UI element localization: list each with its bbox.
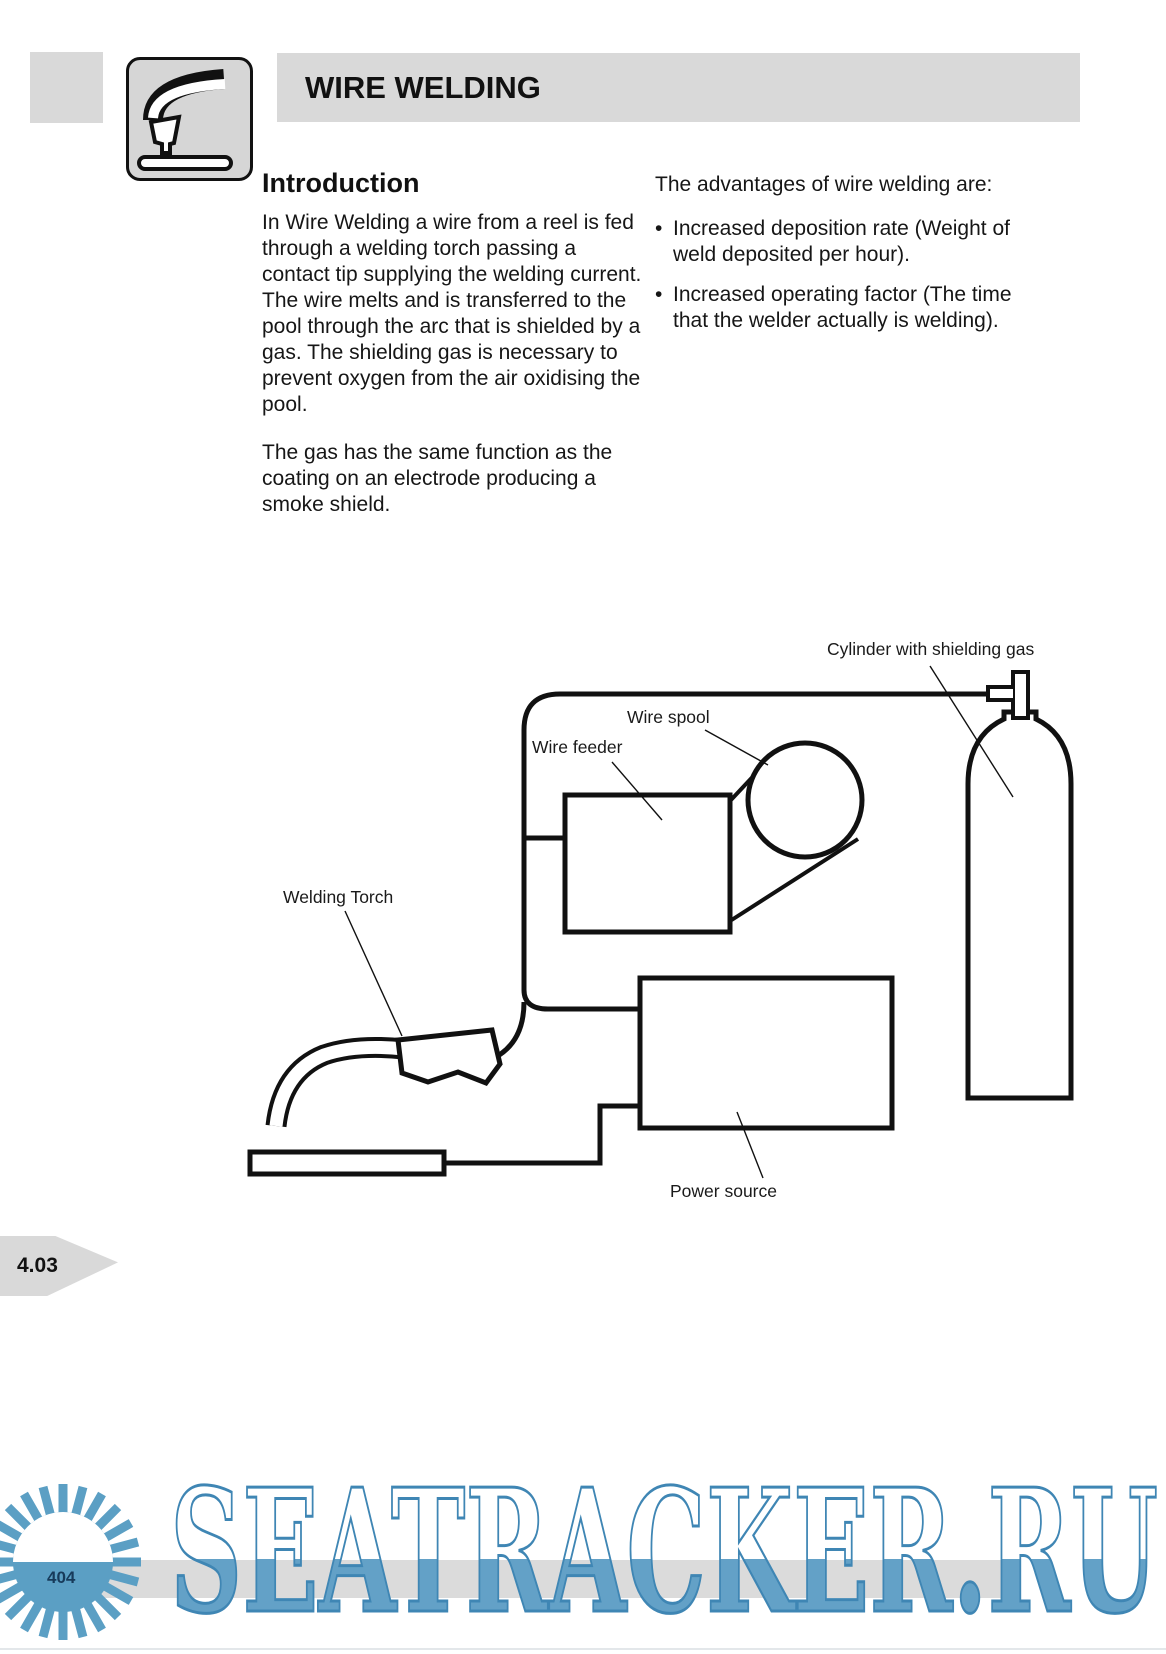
cylinder-label: Cylinder with shielding gas: [827, 639, 1034, 659]
work-lead-line: [444, 1106, 640, 1163]
page-number: 404: [47, 1568, 75, 1588]
power-source-box: [640, 978, 892, 1128]
cylinder-valve-stem: [1013, 672, 1028, 718]
wire-spool-circle: [748, 743, 862, 857]
watermark-layer: SEATRACKER.RU: [0, 1380, 1166, 1654]
sun-logo-icon: [0, 1484, 141, 1640]
watermark-text: SEATRACKER.RU: [170, 1452, 1158, 1652]
torch-leader-line: [345, 911, 402, 1036]
wire-feeder-box: [565, 795, 730, 932]
gas-cylinder: [968, 712, 1071, 1098]
torch-label: Welding Torch: [283, 887, 393, 907]
manual-page: { "header": { "title": "WIRE WELDING" },…: [0, 0, 1166, 1654]
spool-label: Wire spool: [627, 707, 710, 727]
spool-leader-line: [705, 730, 768, 765]
power-label: Power source: [670, 1181, 777, 1201]
feeder-label: Wire feeder: [532, 737, 623, 757]
torch-body: [398, 1030, 500, 1083]
workpiece-bar: [250, 1152, 444, 1174]
cylinder-valve-outlet: [988, 687, 1013, 700]
